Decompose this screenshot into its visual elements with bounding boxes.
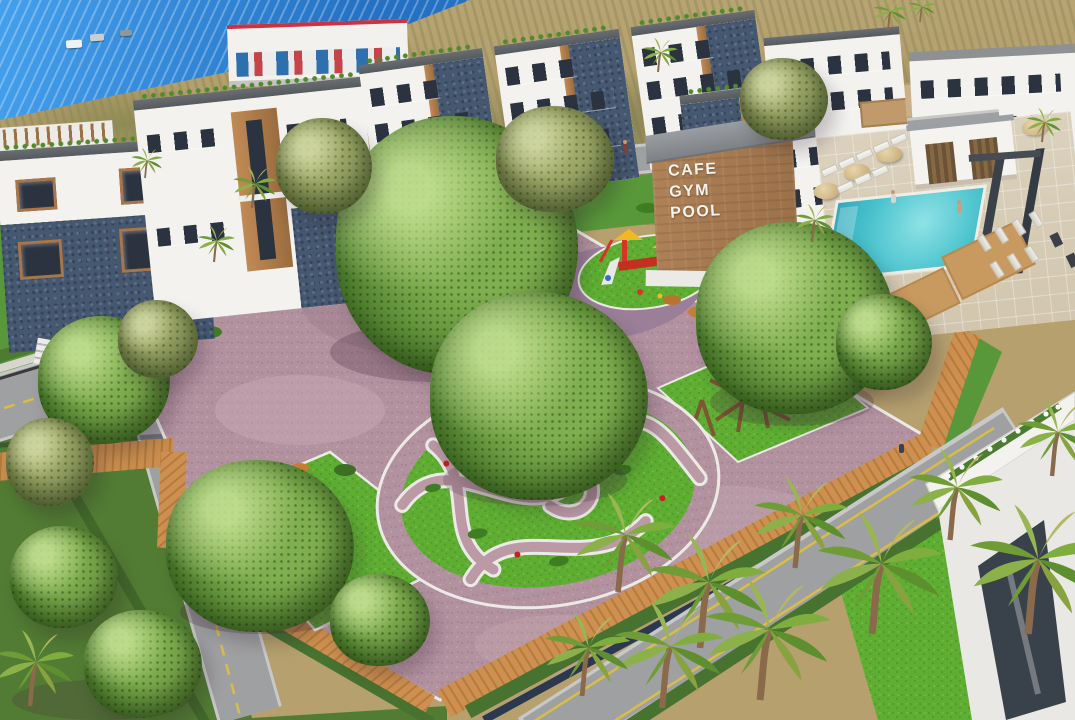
window: [18, 239, 65, 280]
pedestrian: [898, 440, 904, 453]
play-roof-yellow: [614, 229, 643, 240]
child-figure: [658, 294, 663, 299]
pedestrian: [622, 140, 628, 153]
sun-lounger: [871, 164, 890, 178]
sign-line-cafe: CAFE: [668, 158, 720, 182]
window: [15, 177, 57, 212]
bush: [334, 464, 356, 476]
tree: [166, 460, 354, 632]
tree: [10, 526, 118, 628]
person-body: [623, 144, 628, 153]
deck-table: [1066, 252, 1075, 268]
olive-tree: [6, 418, 94, 506]
olive-tree: [740, 58, 828, 140]
person-body: [891, 194, 896, 203]
sun-lounger: [820, 164, 839, 178]
person-body: [957, 204, 962, 213]
sun-lounger: [855, 148, 874, 162]
tree: [330, 574, 430, 666]
orange-shrub: [663, 295, 681, 305]
aerial-render-scene: CAFE GYM POOL: [0, 0, 1075, 720]
sun-lounger: [836, 180, 855, 194]
olive-tree: [276, 118, 372, 214]
window-row: [147, 128, 218, 153]
gravel-light-patch: [215, 375, 385, 445]
large-tree: [430, 292, 648, 500]
child-figure: [637, 289, 643, 295]
sign-line-pool: POOL: [670, 200, 722, 224]
sun-umbrella: [1021, 118, 1049, 137]
person-body: [899, 444, 904, 453]
window-row: [156, 222, 227, 247]
olive-tree: [496, 106, 614, 212]
tree: [836, 294, 932, 390]
tree: [84, 610, 202, 718]
pedestrian: [890, 190, 896, 203]
child-figure: [605, 275, 611, 281]
sign-line-gym: GYM: [669, 179, 721, 203]
amenities-sign: CAFE GYM POOL: [668, 158, 723, 224]
tan-pergola: [859, 97, 908, 128]
olive-tree: [118, 300, 198, 378]
pedestrian: [956, 200, 962, 213]
deck-table: [1049, 232, 1063, 248]
pavilion-door: [925, 142, 957, 185]
sun-lounger: [890, 132, 909, 146]
